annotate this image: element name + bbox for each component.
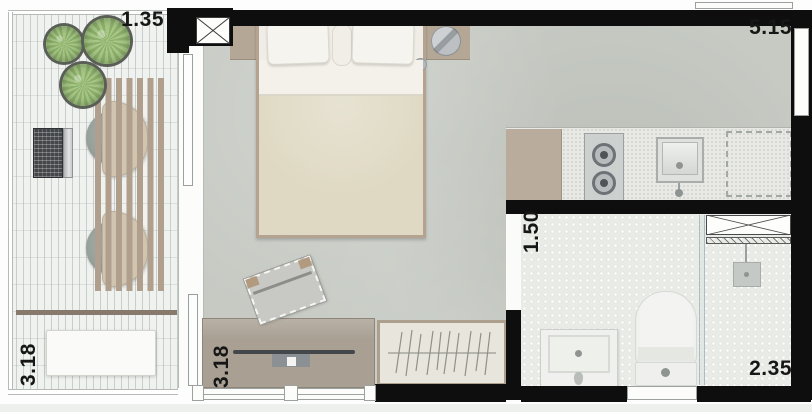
pillow bbox=[351, 21, 414, 65]
balcony-bench-edge bbox=[16, 310, 177, 315]
bolster-pillow bbox=[332, 24, 352, 66]
floor-plan: 1.35 5.15 3.18 3.18 1.50 2.35 bbox=[0, 0, 812, 412]
crossed-box-icon bbox=[196, 17, 230, 44]
plant-icon bbox=[62, 64, 104, 106]
sliding-door-panel bbox=[188, 294, 198, 386]
duct-shaft bbox=[196, 17, 230, 44]
kitchen-sink-basin bbox=[662, 142, 698, 175]
shower-glass-partition bbox=[699, 215, 705, 385]
tv-mount-plate bbox=[287, 357, 296, 366]
wall-bottom-mid bbox=[521, 386, 627, 402]
faucet-icon bbox=[675, 189, 683, 197]
dimension-room-width: 5.15 bbox=[744, 17, 792, 39]
sliding-door-panel bbox=[183, 54, 193, 186]
laptop-screen bbox=[63, 128, 73, 178]
vanity-faucet bbox=[574, 372, 583, 385]
dimension-bathroom-width: 2.35 bbox=[744, 358, 792, 380]
bed-duvet bbox=[259, 92, 423, 235]
shower-arm bbox=[745, 244, 747, 264]
exterior-ground bbox=[0, 404, 812, 412]
wall-top bbox=[233, 10, 793, 26]
wall-bottom-left bbox=[375, 384, 506, 402]
decor-bowl-icon bbox=[431, 26, 461, 56]
niche-hatch bbox=[706, 237, 791, 244]
planter-bench bbox=[46, 330, 156, 376]
window-top-right bbox=[695, 2, 793, 9]
sink-drain bbox=[676, 162, 683, 169]
wall-step bbox=[167, 44, 189, 53]
wall-kitchen-bath bbox=[506, 200, 793, 214]
window-right bbox=[794, 28, 809, 116]
burner-center bbox=[600, 151, 608, 159]
hanging-clothes-icon bbox=[380, 323, 504, 383]
shower-head-center bbox=[744, 272, 749, 277]
balcony-railing-left bbox=[8, 12, 13, 392]
dimension-balcony-width: 1.35 bbox=[108, 9, 164, 31]
dimension-room-depth: 3.18 bbox=[211, 334, 233, 388]
appliance-space bbox=[726, 131, 792, 197]
kitchen-cabinet bbox=[506, 129, 562, 200]
wardrobe bbox=[377, 320, 507, 386]
dimension-balcony-depth: 3.18 bbox=[18, 332, 40, 386]
window-post bbox=[192, 385, 204, 401]
dimension-bathroom-depth: 1.50 bbox=[521, 201, 543, 253]
vanity-drain bbox=[575, 350, 582, 357]
shower-niche bbox=[706, 215, 791, 235]
balcony-railing-bottom bbox=[8, 389, 178, 395]
window-post bbox=[284, 385, 298, 401]
bathroom-doorway bbox=[506, 214, 521, 310]
window-post bbox=[364, 385, 376, 401]
burner-center bbox=[600, 179, 608, 187]
plant-icon bbox=[46, 26, 82, 62]
pillow bbox=[266, 21, 329, 65]
toilet-seat-band bbox=[638, 347, 694, 361]
toilet-flush bbox=[661, 368, 670, 377]
wall-bath-left bbox=[506, 310, 521, 400]
laptop-icon bbox=[33, 128, 63, 178]
slat-desk bbox=[95, 78, 165, 291]
window-bathroom bbox=[627, 386, 697, 400]
wall-bottom-right bbox=[697, 386, 811, 402]
crossed-box-icon bbox=[706, 215, 791, 235]
